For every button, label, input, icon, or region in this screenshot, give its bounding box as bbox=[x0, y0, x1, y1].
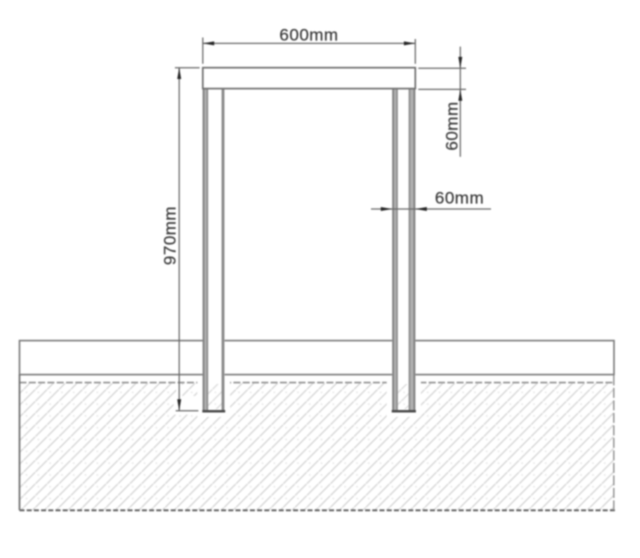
svg-text:60mm: 60mm bbox=[443, 101, 462, 150]
svg-text:60mm: 60mm bbox=[435, 189, 484, 208]
svg-text:600mm: 600mm bbox=[279, 26, 338, 45]
svg-text:970mm: 970mm bbox=[161, 206, 180, 265]
